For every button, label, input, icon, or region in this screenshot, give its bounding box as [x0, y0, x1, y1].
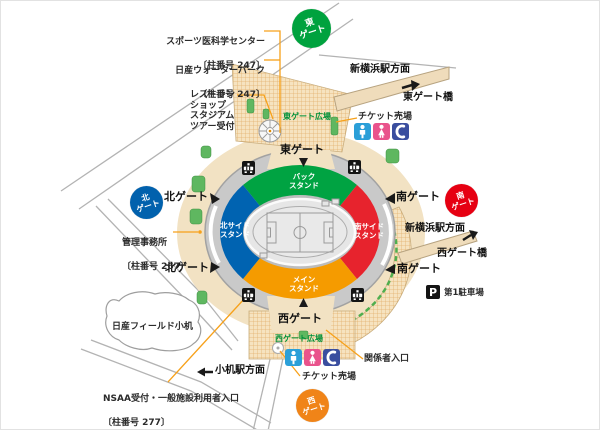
- east-gate-plaza-label: 東ゲート広場: [283, 112, 331, 122]
- east-gate-bridge-label: 東ゲート橋: [403, 92, 453, 105]
- stadium-area-map: バック スタンド 北サイド スタンド 南サイド スタンド メイン スタンド 東 …: [0, 0, 600, 430]
- female-restroom-icon: [373, 123, 390, 140]
- west-gate-plaza-label: 西ゲート広場: [275, 334, 323, 344]
- north-gate-badge: 北 ゲート: [130, 186, 163, 219]
- admin-office-label: 管理事務所 〔柱番号 267〕: [122, 225, 189, 285]
- south-gate-badge-label: 南 ゲート: [447, 189, 475, 213]
- west-gate-bridge-label: 西ゲート橋: [437, 248, 487, 261]
- south-gate-badge: 南 ゲート: [445, 184, 478, 217]
- admin-office-name: 管理事務所: [122, 237, 189, 249]
- west-gate-badge: 西 ゲート: [296, 389, 329, 422]
- female-restroom-icon: [304, 349, 321, 366]
- east-gate-badge: 東 ゲート: [292, 9, 331, 48]
- public-phone-icon: [392, 123, 409, 140]
- amenities-bottom: [285, 349, 340, 366]
- parking-lot-label: 第1駐車場: [444, 287, 484, 299]
- nissan-field-kozukue-label: 日産フィールド小机: [112, 321, 193, 333]
- east-gate-label: 東ゲート: [280, 143, 324, 157]
- leader-dot: [198, 230, 202, 234]
- ticket-office-bottom-label: チケット売場: [302, 371, 356, 383]
- male-restroom-icon: [285, 349, 302, 366]
- parking-icon: P: [426, 285, 440, 299]
- shin-yokohama-direction-right: 新横浜駅方面: [405, 223, 465, 236]
- main-stand-label: メイン スタンド: [274, 275, 334, 293]
- north-gate-badge-label: 北 ゲート: [132, 191, 160, 215]
- entrance-booth-icon: [242, 161, 255, 175]
- back-stand-label: バック スタンド: [274, 172, 334, 190]
- west-gate-label: 西ゲート: [278, 312, 322, 326]
- south-side-stand-label: 南サイド スタンド: [339, 222, 399, 240]
- public-phone-icon: [323, 349, 340, 366]
- north-side-stand-label: 北サイド スタンド: [205, 221, 265, 239]
- nsaa-reception-name: NSAA受付・一般施設利用者入口: [103, 393, 239, 405]
- ticket-office-top-label: チケット売場: [358, 111, 412, 123]
- shin-yokohama-direction-top: 新横浜駅方面: [350, 64, 410, 77]
- amenities-top: [354, 123, 409, 140]
- restaurant-shop-tour-label: レストラン ショップ スタジアム ツアー受付: [190, 90, 235, 132]
- kozukue-station-direction: 小机駅方面: [215, 365, 265, 378]
- south-gate-lower-label: 南ゲート: [397, 262, 441, 276]
- roundabout: [273, 343, 284, 354]
- east-gate-badge-label: 東 ゲート: [296, 15, 328, 42]
- south-gate-upper-label: 南ゲート: [396, 190, 440, 204]
- west-gate-badge-label: 西 ゲート: [298, 394, 326, 418]
- entrance-booth-icon: [348, 160, 361, 174]
- admin-office-pillar: 〔柱番号 267〕: [122, 261, 189, 273]
- spiral-ramp: [259, 120, 281, 142]
- nsaa-reception-pillar: 〔柱番号 277〕: [103, 417, 239, 429]
- water-park-name: 日産ウォーターパーク: [141, 65, 265, 77]
- male-restroom-icon: [354, 123, 371, 140]
- staff-entrance-label: 関係者入口: [364, 353, 409, 365]
- sports-med-center-name: スポーツ医科学センター: [141, 36, 265, 48]
- nsaa-reception-label: NSAA受付・一般施設利用者入口 〔柱番号 277〕: [103, 381, 239, 430]
- entrance-booth-icon: [351, 288, 364, 302]
- entrance-booth-icon: [242, 288, 255, 302]
- north-gate-upper-label: 北ゲート: [164, 190, 208, 204]
